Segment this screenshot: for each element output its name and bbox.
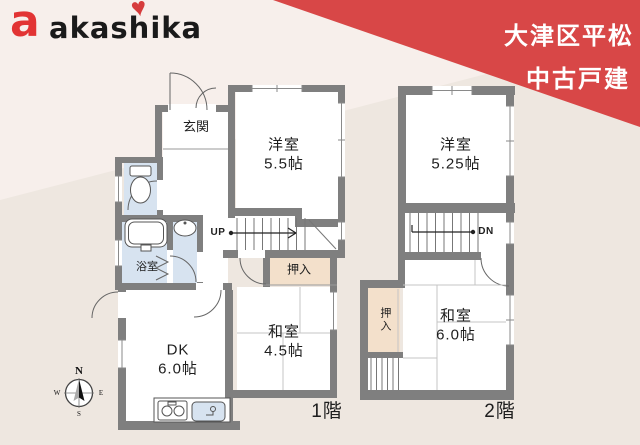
f1-yoshitsu-name: 洋室 (264, 136, 304, 155)
f2-dn-label: DN (478, 226, 493, 239)
toilet-fixture (130, 166, 151, 203)
f1-washitsu-label: 和室 4.5帖 (264, 323, 304, 361)
dk-name: DK (158, 341, 198, 360)
header-location: 大津区平松 (504, 16, 634, 51)
f2-yoshitsu-name: 洋室 (431, 136, 480, 155)
bathtub-fixture (125, 219, 167, 251)
floor2-label: 2階 (484, 400, 516, 424)
yokushitsu-label: 浴室 (136, 261, 158, 275)
f1-washitsu-size: 4.5帖 (264, 342, 304, 361)
f1-oshiire-label: 押入 (287, 263, 311, 278)
washitsu-door-arc (240, 258, 266, 284)
f2-washitsu-name: 和室 (436, 307, 476, 326)
f1-yoshitsu-label: 洋室 5.5帖 (264, 136, 304, 174)
compass-e-label: E (99, 389, 103, 397)
f2-washitsu-label: 和室 6.0帖 (436, 307, 476, 345)
header-property-type: 中古戸建 (526, 59, 630, 94)
f2-yoshitsu-label: 洋室 5.25帖 (431, 136, 480, 174)
logo: a akashika ♥ (0, 0, 220, 60)
f2-yoshitsu-size: 5.25帖 (431, 155, 480, 174)
f1-yoshitsu-size: 5.5帖 (264, 155, 304, 174)
floor2-plan (360, 86, 515, 400)
f1-up-label: UP (211, 227, 226, 240)
washbasin-fixture (174, 220, 196, 236)
genkan-label: 玄関 (183, 119, 209, 135)
dk-label: DK 6.0帖 (158, 341, 198, 379)
f1-washitsu-name: 和室 (264, 323, 304, 342)
f2-oshiire-label: 押入 (377, 307, 391, 333)
compass-s-label: S (77, 410, 81, 418)
floor2-openings (481, 252, 506, 260)
logo-a-icon: a (10, 0, 40, 47)
compass-w-label: W (54, 389, 61, 397)
kitchen-fixtures (154, 398, 230, 422)
flyer-floorplan-page: a akashika ♥ 大津区平松 中古戸建 玄関 洋室 5.5帖 UP 押入… (0, 0, 640, 445)
sink-icon (192, 402, 225, 421)
dk-size: 6.0帖 (158, 360, 198, 379)
back-door-arc (92, 292, 118, 318)
compass-rose-icon (64, 378, 94, 408)
f2-washitsu-size: 6.0帖 (436, 326, 476, 345)
floor1-label: 1階 (311, 400, 343, 424)
compass-n-label: N (75, 365, 83, 377)
logo-wordmark: akashika (49, 11, 202, 45)
